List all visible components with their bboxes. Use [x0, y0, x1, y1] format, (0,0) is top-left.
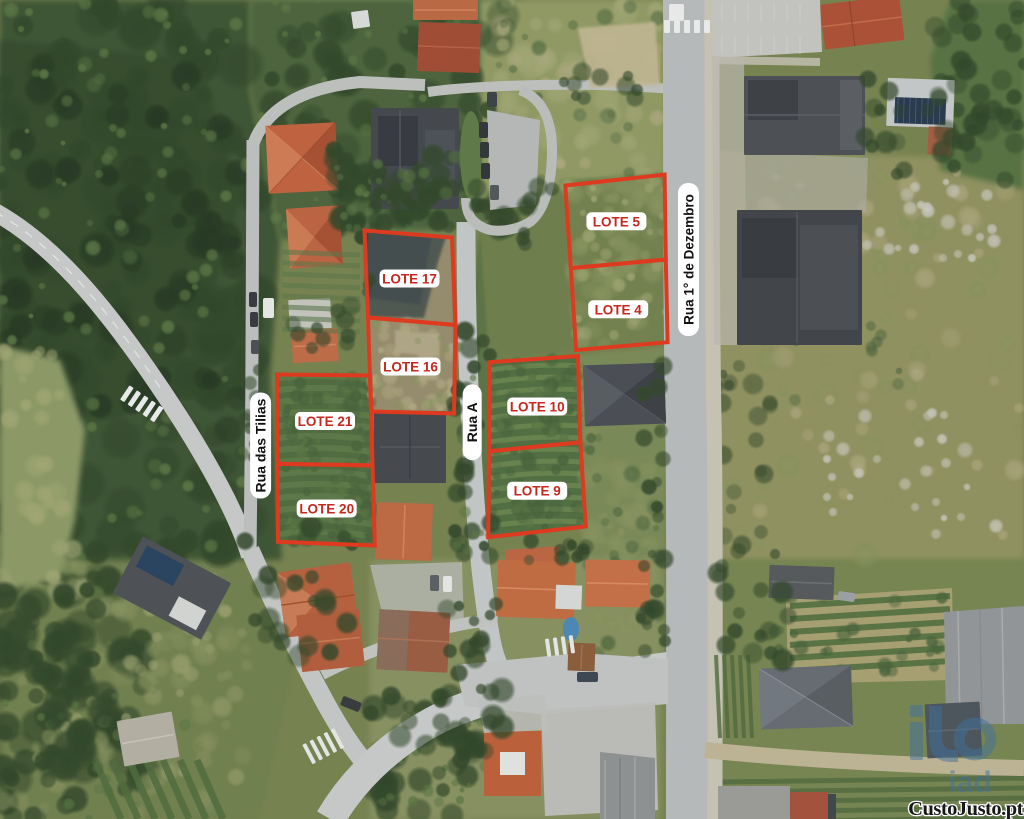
svg-text:Rua das Tilias: Rua das Tilias — [253, 398, 269, 492]
svg-text:LOTE 4: LOTE 4 — [595, 302, 643, 317]
svg-text:iad: iad — [948, 766, 991, 799]
svg-text:LOTE 10: LOTE 10 — [510, 400, 565, 415]
svg-text:CustoJusto.pt: CustoJusto.pt — [908, 798, 1023, 819]
svg-text:LOTE 17: LOTE 17 — [382, 272, 437, 287]
svg-text:LOTE 16: LOTE 16 — [383, 360, 438, 375]
svg-text:LOTE 5: LOTE 5 — [593, 214, 641, 229]
svg-text:LOTE 21: LOTE 21 — [298, 414, 353, 429]
svg-text:Rua A: Rua A — [464, 402, 480, 442]
svg-text:LOTE 9: LOTE 9 — [514, 484, 561, 499]
svg-text:Rua 1° de Dezembro: Rua 1° de Dezembro — [682, 194, 697, 325]
svg-text:LOTE 20: LOTE 20 — [299, 502, 354, 517]
